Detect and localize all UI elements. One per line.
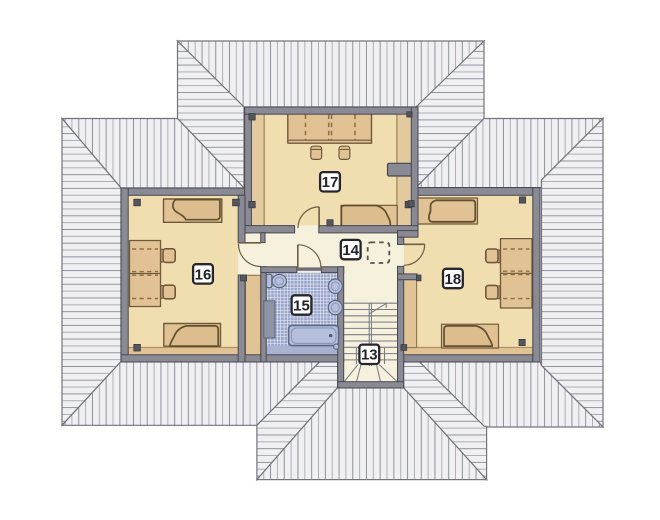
svg-text:14: 14 [342,242,359,259]
svg-text:15: 15 [293,297,310,314]
svg-text:17: 17 [322,174,339,191]
svg-text:13: 13 [361,347,378,364]
svg-text:18: 18 [445,271,462,288]
svg-text:16: 16 [195,266,212,283]
